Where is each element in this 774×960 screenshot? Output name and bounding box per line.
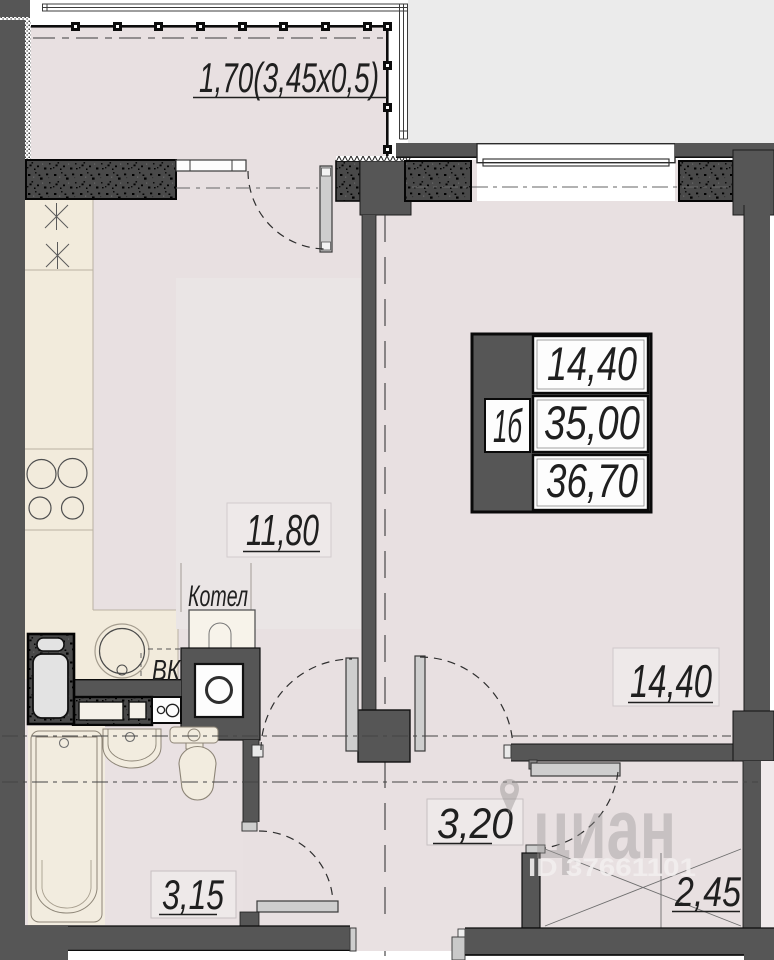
svg-text:3,20: 3,20 — [437, 800, 513, 848]
svg-text:Котел: Котел — [188, 580, 248, 613]
svg-text:ID 37661101: ID 37661101 — [528, 854, 696, 882]
svg-text:11,80: 11,80 — [246, 506, 319, 555]
svg-text:14,40: 14,40 — [547, 337, 637, 390]
svg-text:14,40: 14,40 — [630, 655, 712, 707]
svg-text:3,15: 3,15 — [162, 871, 224, 918]
svg-text:1б: 1б — [493, 400, 523, 452]
svg-text:ВК: ВК — [152, 655, 181, 687]
svg-text:36,70: 36,70 — [546, 454, 638, 507]
svg-text:35,00: 35,00 — [544, 396, 640, 449]
svg-text:1,70(3,45x0,5): 1,70(3,45x0,5) — [199, 54, 379, 101]
